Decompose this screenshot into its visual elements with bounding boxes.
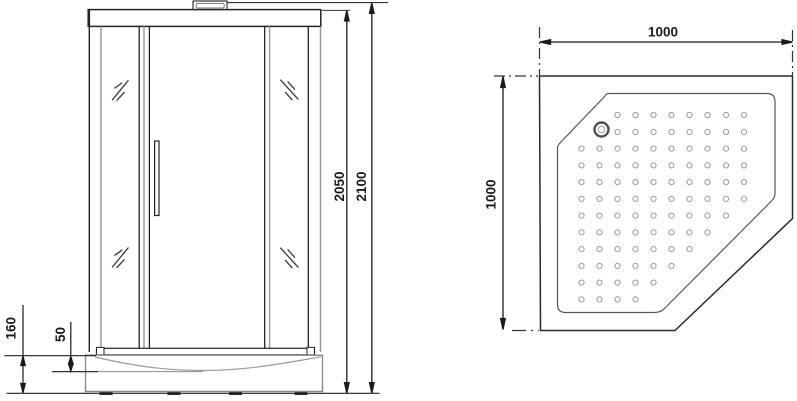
svg-text:2050: 2050: [332, 171, 347, 201]
svg-text:1000: 1000: [648, 24, 678, 39]
svg-text:2100: 2100: [354, 171, 369, 201]
svg-text:1000: 1000: [484, 179, 499, 209]
svg-text:160: 160: [4, 317, 19, 340]
svg-text:50: 50: [53, 327, 68, 342]
